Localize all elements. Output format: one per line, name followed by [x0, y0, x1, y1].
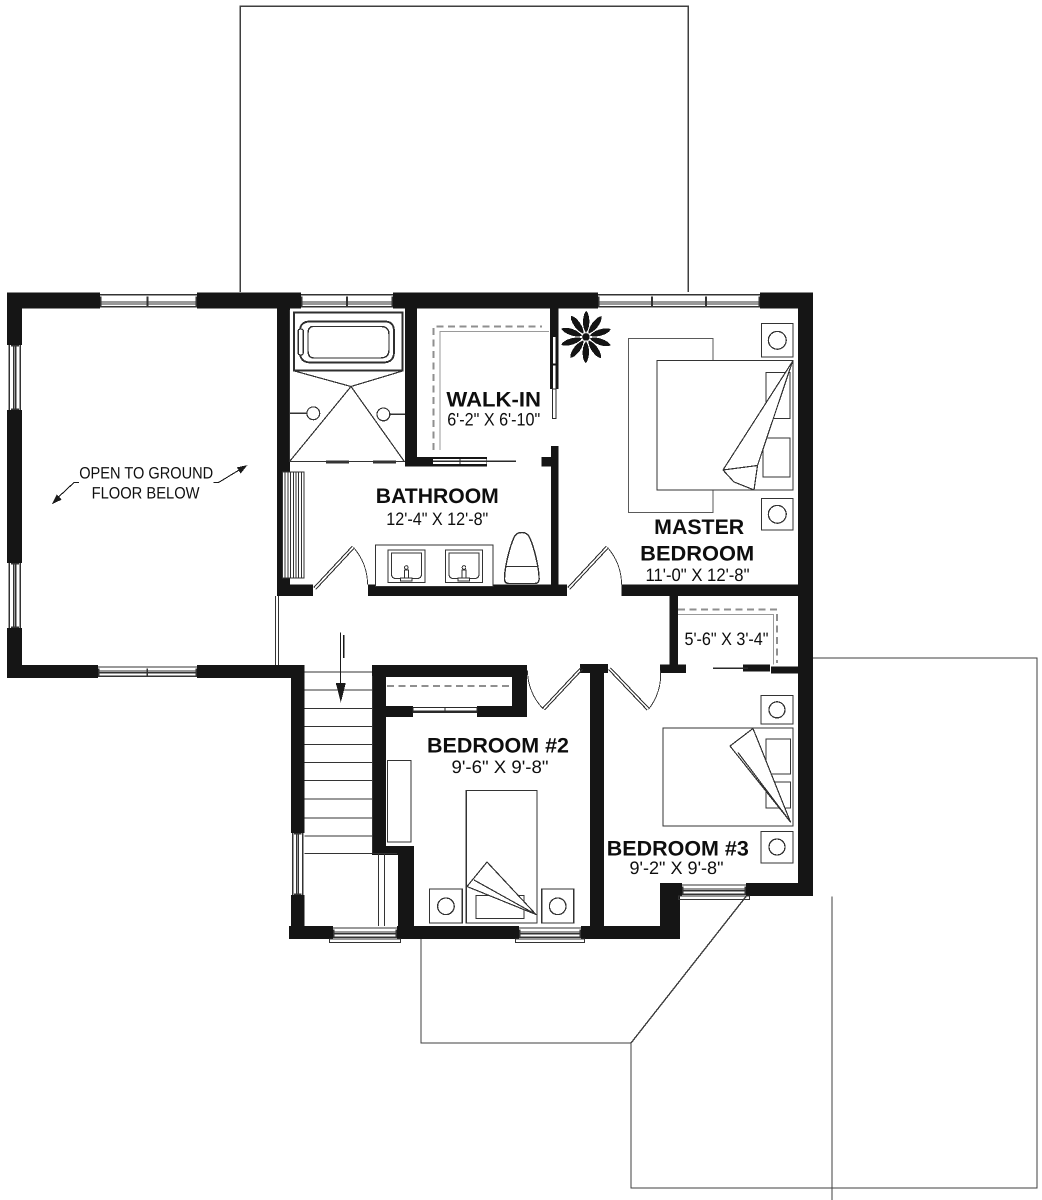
svg-text:BEDROOM #2: BEDROOM #2 [427, 734, 569, 757]
svg-text:12'-4" X 12'-8": 12'-4" X 12'-8" [386, 509, 488, 529]
svg-text:BATHROOM: BATHROOM [376, 485, 499, 508]
svg-text:11'-0" X 12'-8": 11'-0" X 12'-8" [646, 565, 750, 585]
svg-text:BEDROOM: BEDROOM [640, 542, 754, 565]
svg-text:MASTER: MASTER [654, 516, 744, 539]
svg-text:OPEN TO GROUND: OPEN TO GROUND [79, 465, 213, 483]
svg-text:6'-2" X 6'-10": 6'-2" X 6'-10" [447, 410, 540, 430]
svg-text:5'-6" X 3'-4": 5'-6" X 3'-4" [685, 629, 769, 649]
svg-text:9'-2" X 9'-8": 9'-2" X 9'-8" [630, 858, 724, 878]
svg-text:9'-6" X 9'-8": 9'-6" X 9'-8" [452, 757, 549, 777]
svg-text:FLOOR BELOW: FLOOR BELOW [92, 484, 200, 502]
svg-text:WALK-IN: WALK-IN [446, 389, 541, 412]
